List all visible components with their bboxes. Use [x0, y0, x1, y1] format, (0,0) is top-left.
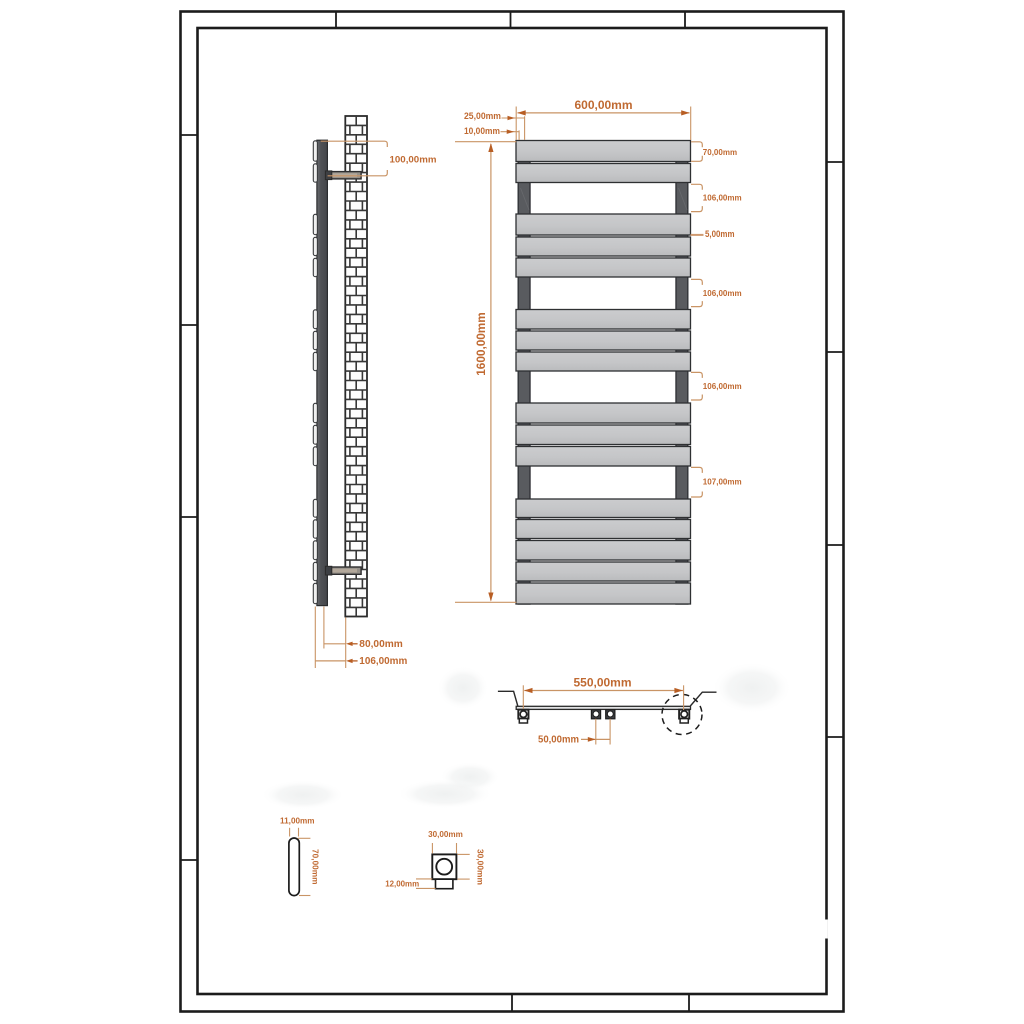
svg-text:5,00mm: 5,00mm — [705, 229, 735, 239]
svg-text:1600,00mm: 1600,00mm — [474, 312, 488, 376]
svg-text:106,00mm: 106,00mm — [703, 193, 742, 203]
svg-text:600,00mm: 600,00mm — [575, 98, 633, 112]
svg-text:25,00mm: 25,00mm — [464, 111, 501, 121]
svg-text:80,00mm: 80,00mm — [359, 639, 403, 650]
svg-text:50,00mm: 50,00mm — [538, 734, 579, 745]
svg-text:100,00mm: 100,00mm — [390, 154, 437, 164]
svg-text:30,00mm: 30,00mm — [475, 849, 485, 885]
svg-text:106,00mm: 106,00mm — [703, 381, 742, 391]
svg-text:106,00mm: 106,00mm — [703, 288, 742, 298]
svg-text:30,00mm: 30,00mm — [428, 829, 463, 839]
svg-text:12,00mm: 12,00mm — [385, 879, 419, 889]
svg-text:107,00mm: 107,00mm — [703, 477, 742, 487]
svg-text:70,00mm: 70,00mm — [310, 849, 320, 885]
svg-text:550,00mm: 550,00mm — [574, 675, 632, 689]
svg-text:70,00mm: 70,00mm — [703, 147, 738, 157]
svg-text:10,00mm: 10,00mm — [464, 126, 500, 136]
svg-text:106,00mm: 106,00mm — [359, 656, 407, 667]
svg-text:11,00mm: 11,00mm — [280, 816, 315, 826]
